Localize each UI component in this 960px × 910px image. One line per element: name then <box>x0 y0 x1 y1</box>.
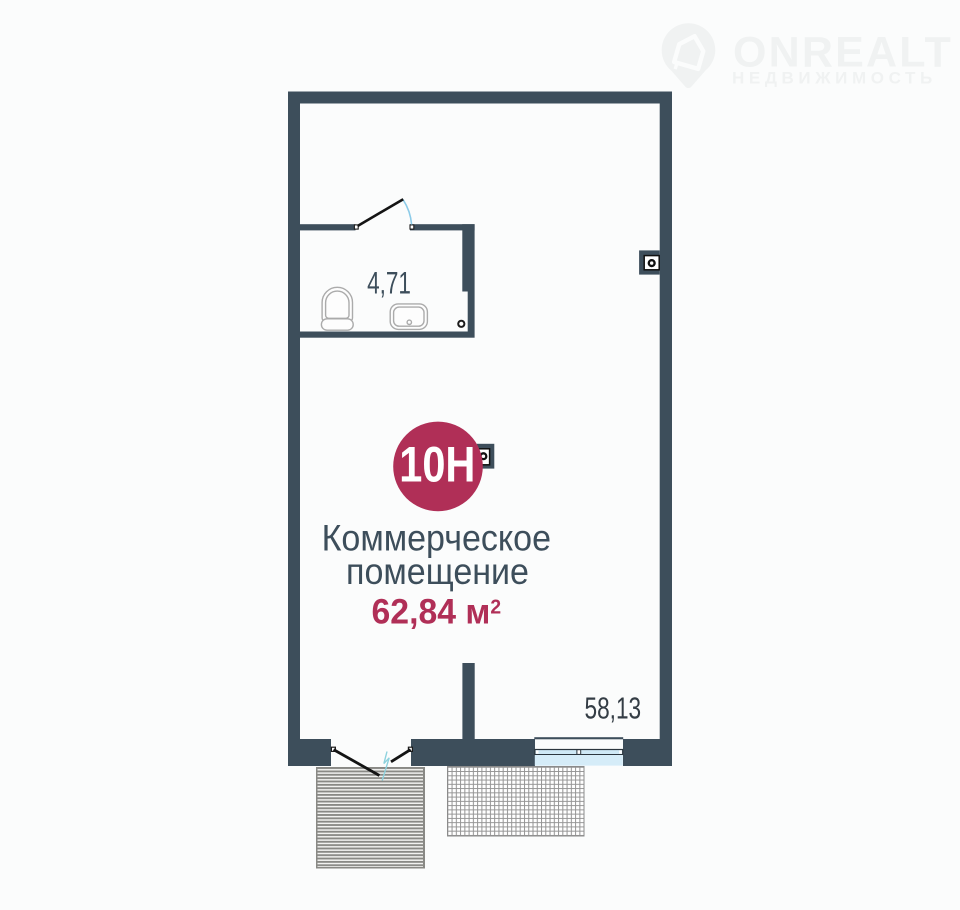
svg-text:58,13: 58,13 <box>584 690 641 725</box>
svg-text:4,71: 4,71 <box>367 265 411 301</box>
svg-text:помещение: помещение <box>346 551 529 593</box>
svg-text:10Н: 10Н <box>399 436 475 493</box>
svg-text:62,84 м2: 62,84 м2 <box>372 593 502 632</box>
svg-text:НЕДВИЖИМОСТЬ: НЕДВИЖИМОСТЬ <box>732 68 937 87</box>
